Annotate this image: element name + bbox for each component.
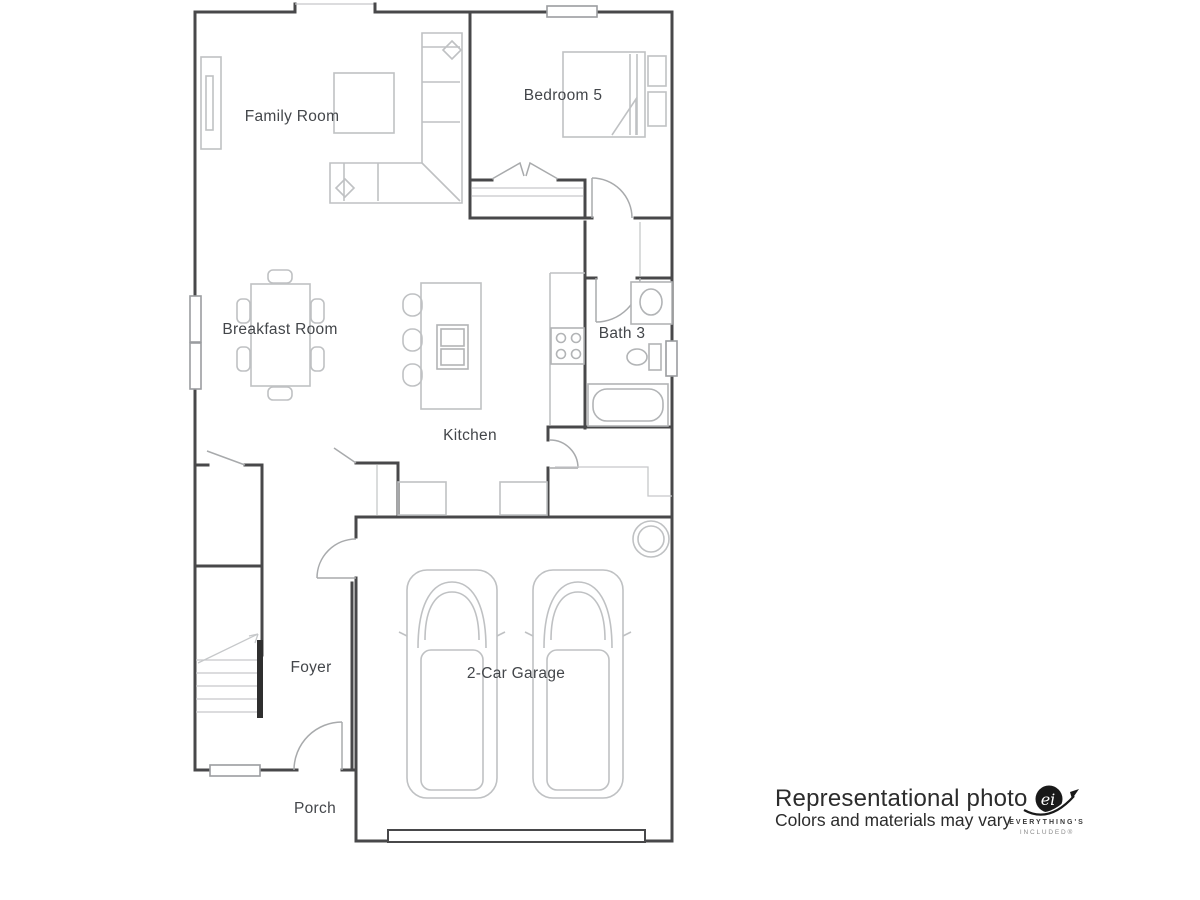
stairs [196, 634, 263, 718]
bath3-fixtures [588, 222, 672, 426]
brand-tagline-line2: INCLUDED® [1020, 828, 1074, 836]
brand-tagline-line1: EVERYTHING'S [1009, 819, 1085, 826]
room-label-kitchen: Kitchen [443, 427, 497, 444]
window-bedroom5 [547, 6, 597, 17]
door-front-entry [294, 722, 342, 770]
window-bath3 [666, 341, 677, 376]
kitchen-island [403, 283, 481, 409]
caption-line2: Colors and materials may vary [775, 810, 1012, 830]
logo-monogram: ei [1041, 790, 1056, 809]
door-garage-entry [317, 539, 356, 578]
door-understair-closet [207, 451, 245, 465]
stool [403, 364, 422, 386]
chair [311, 347, 324, 371]
mirrors [525, 632, 631, 636]
window-breakfast-lower [190, 343, 201, 389]
sink [640, 289, 662, 315]
chair [311, 299, 324, 323]
car-right [525, 570, 631, 798]
stair-direction-line [198, 634, 258, 663]
caption: Representational photo Colors and materi… [775, 785, 1028, 830]
chair [268, 270, 292, 283]
room-label-bedroom5: Bedroom 5 [524, 87, 603, 104]
chair [268, 387, 292, 400]
floor-plan-page: Family Room Bedroom 5 Breakfast Room Bat… [0, 0, 1200, 900]
nightstand [648, 56, 666, 86]
room-label-breakfast-room: Breakfast Room [222, 321, 337, 338]
room-label-bath3: Bath 3 [599, 325, 646, 342]
media-console [201, 57, 221, 149]
room-label-family-room: Family Room [245, 108, 340, 125]
window-breakfast-upper [190, 296, 201, 342]
room-label-foyer: Foyer [290, 659, 331, 676]
chair [237, 299, 250, 323]
blanket-fold [612, 99, 636, 135]
car-left [399, 570, 505, 798]
bathtub [588, 384, 668, 426]
ottoman [334, 73, 394, 133]
sectional-sofa [330, 33, 462, 203]
throw-pillow [443, 41, 461, 59]
window-foyer [210, 765, 260, 776]
media-console-inner [206, 76, 213, 130]
room-label-garage: 2-Car Garage [467, 665, 565, 682]
refrigerator [500, 482, 547, 515]
base-cabinet [398, 482, 446, 515]
stair-railing [257, 640, 263, 718]
laundry-counter [555, 467, 672, 496]
nightstand [648, 92, 666, 126]
garage-door [388, 830, 645, 842]
laundry-area [555, 467, 672, 496]
chair [237, 347, 250, 371]
door-laundry [550, 440, 578, 468]
door-pantry [334, 448, 356, 463]
mirrors [399, 632, 505, 636]
stool [403, 294, 422, 316]
room-label-porch: Porch [294, 800, 336, 817]
water-heater [633, 521, 669, 557]
throw-pillow [336, 179, 354, 197]
kitchen-fixtures [377, 273, 585, 515]
floor-plan-drawing: Family Room Bedroom 5 Breakfast Room Bat… [0, 0, 1200, 900]
toilet [627, 344, 661, 370]
stool [403, 329, 422, 351]
caption-line1: Representational photo [775, 785, 1028, 812]
door-bedroom5 [592, 178, 632, 218]
range-cooktop [551, 328, 584, 364]
